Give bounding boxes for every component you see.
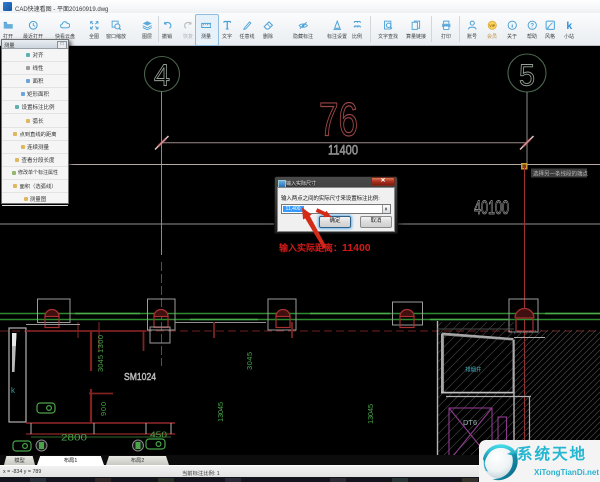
svg-text:900: 900 — [99, 402, 108, 416]
svg-text:k: k — [566, 20, 572, 31]
svg-text:11400: 11400 — [328, 143, 358, 158]
svg-text:450: 450 — [150, 430, 167, 440]
svg-text:4: 4 — [154, 58, 170, 93]
svg-text:排烟井: 排烟井 — [465, 366, 482, 374]
svg-text:5: 5 — [519, 58, 535, 93]
svg-text:3045: 3045 — [245, 352, 254, 370]
svg-text:40100: 40100 — [474, 198, 509, 219]
svg-text:DT6: DT6 — [463, 418, 477, 427]
svg-text:1300: 1300 — [96, 335, 105, 353]
svg-text:VIP: VIP — [489, 24, 496, 28]
svg-text:选择另一条线段的端点: 选择另一条线段的端点 — [533, 170, 589, 178]
svg-text:k: k — [11, 386, 16, 395]
svg-text:3045: 3045 — [96, 355, 105, 372]
svg-text:?: ? — [530, 23, 534, 29]
svg-text:76: 76 — [319, 93, 358, 146]
svg-text:13045: 13045 — [366, 404, 375, 424]
svg-text:SM1024: SM1024 — [124, 371, 156, 383]
svg-text:2800: 2800 — [61, 433, 87, 443]
svg-text:13045: 13045 — [216, 402, 225, 422]
